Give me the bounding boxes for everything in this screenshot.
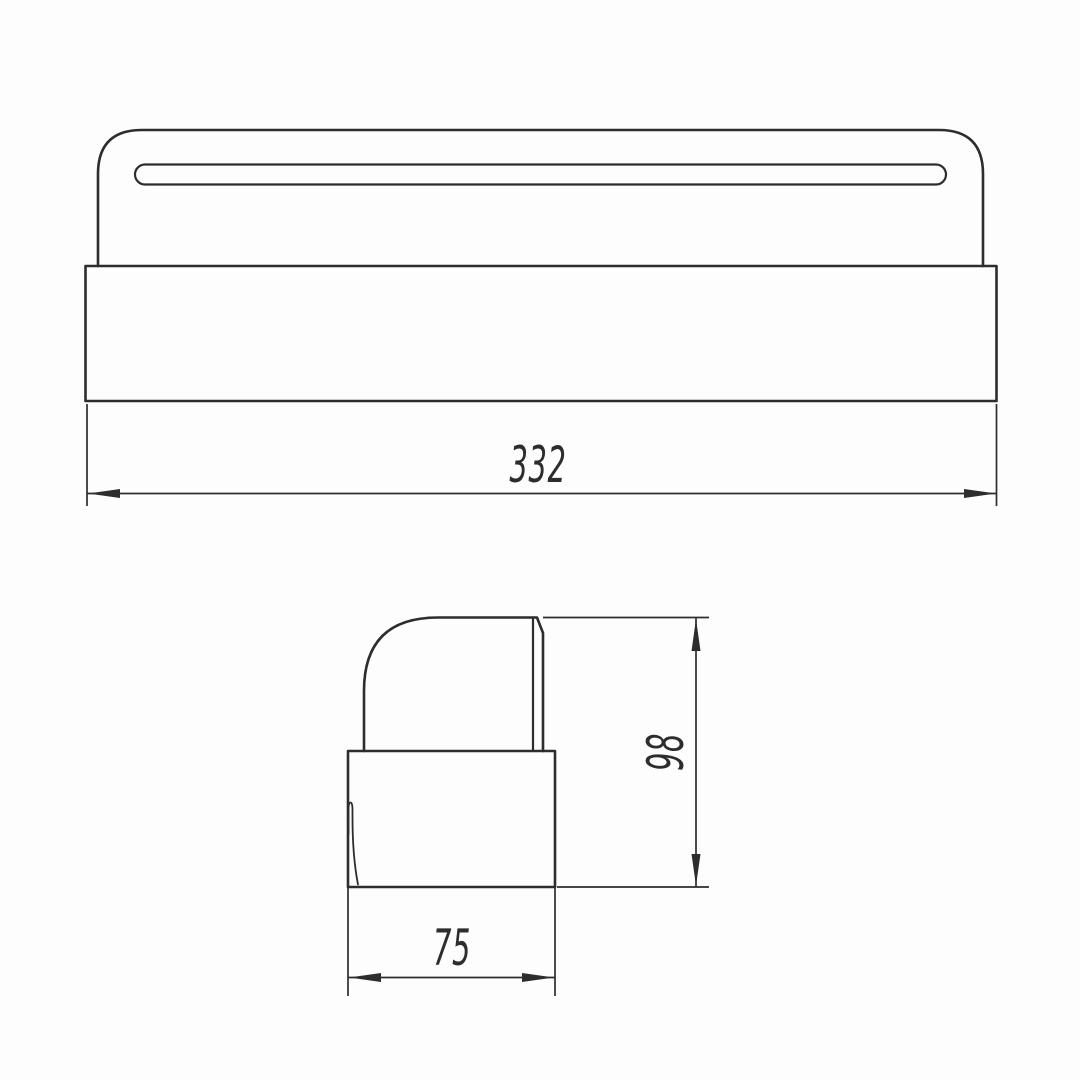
front-base-outline <box>86 266 997 401</box>
width-dimension-label: 332 <box>509 440 566 490</box>
depth-dimension-label: 75 <box>433 923 471 973</box>
drawing-linework <box>0 0 1080 1080</box>
side-view <box>348 618 709 997</box>
side-profile-outline <box>364 618 543 752</box>
height-arrow-top <box>692 619 701 651</box>
side-base-outline <box>348 751 555 887</box>
depth-arrow-left <box>349 973 381 982</box>
depth-arrow-right <box>522 973 554 982</box>
height-arrow-bottom <box>692 854 701 886</box>
side-curl-edge <box>349 803 359 885</box>
front-plate-outline <box>98 130 983 266</box>
front-slot <box>135 165 946 185</box>
width-arrow-left <box>88 489 120 498</box>
technical-drawing-canvas: 332 98 75 <box>0 0 1080 1080</box>
height-dimension-label: 98 <box>641 733 691 771</box>
width-arrow-right <box>964 489 996 498</box>
